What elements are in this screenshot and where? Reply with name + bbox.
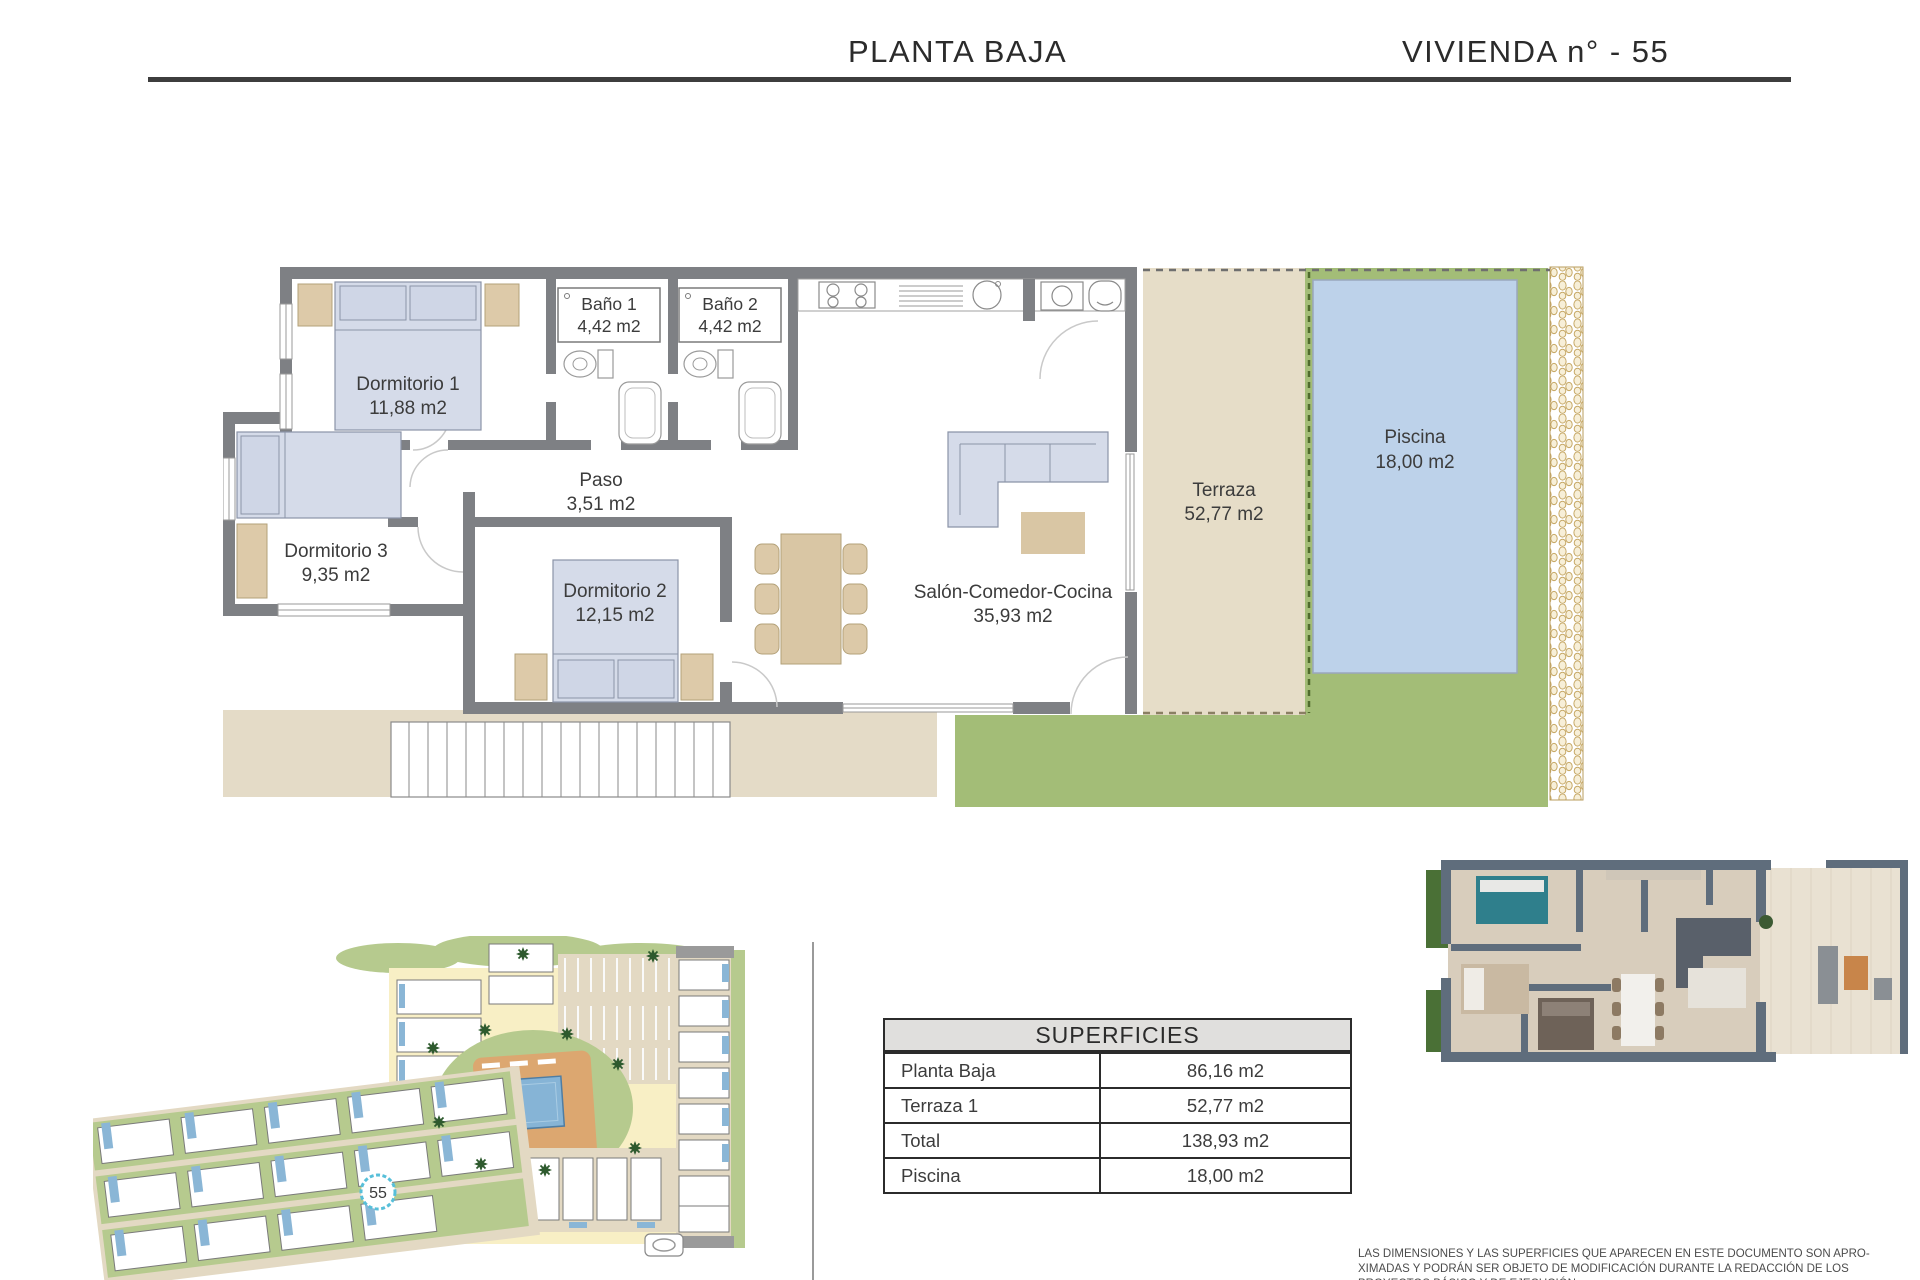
table-row-value: 52,77 m2 [1101,1089,1350,1122]
site-plan: 55 [93,936,812,1280]
site-left-wing [93,1066,540,1280]
table-row: Total 138,93 m2 [885,1122,1350,1157]
room-label-dormitorio3-name: Dormitorio 3 [284,541,387,562]
site-entrance-car-icon [645,1234,683,1256]
superficies-table: SUPERFICIES Planta Baja 86,16 m2 Terraza… [883,1018,1352,1194]
floor-plan: Dormitorio 1 11,88 m2 Baño 1 4,42 m2 Bañ… [223,262,1600,810]
room-label-dormitorio2-area: 12,15 m2 [575,605,654,626]
table-row-label: Total [885,1124,1101,1157]
table-row-label: Piscina [885,1159,1101,1192]
living-furniture [755,432,1108,664]
disclaimer: LAS DIMENSIONES Y LAS SUPERFICIES QUE AP… [1358,1247,1908,1280]
table-row: Piscina 18,00 m2 [885,1157,1350,1192]
room-label-paso-area: 3,51 m2 [567,494,636,515]
bath2-door-gap [711,440,741,450]
room-label-terraza-area: 52,77 m2 [1184,504,1263,525]
room-label-bano1-area: 4,42 m2 [577,316,640,336]
table-row-value: 18,00 m2 [1101,1159,1350,1192]
kitchen [798,279,1125,321]
unit-55-label: 55 [369,1185,387,1202]
table-row-label: Terraza 1 [885,1089,1101,1122]
room-label-paso-name: Paso [579,470,622,491]
render-3d [1426,856,1916,1066]
table-row: Planta Baja 86,16 m2 [885,1052,1350,1087]
table-row: Terraza 1 52,77 m2 [885,1087,1350,1122]
room-label-piscina-name: Piscina [1384,427,1446,448]
stairs [391,722,730,797]
room-label-bano2-area: 4,42 m2 [698,316,761,336]
page-title-unit: VIVIENDA n° - 55 [1402,34,1669,70]
table-title: SUPERFICIES [885,1020,1350,1052]
disclaimer-line1: LAS DIMENSIONES Y LAS SUPERFICIES QUE AP… [1358,1247,1908,1262]
table-row-value: 86,16 m2 [1101,1054,1350,1087]
section-divider [812,942,814,1280]
plan-sheet: PLANTA BAJA VIVIENDA n° - 55 [0,0,1920,1280]
room-label-bano2-name: Baño 2 [702,294,757,314]
bath1-door-gap [591,440,621,450]
room-label-terraza-name: Terraza [1192,480,1256,501]
site-right-column [676,946,745,1248]
room-label-bano1-name: Baño 1 [581,294,636,314]
room-label-dormitorio2-name: Dormitorio 2 [563,581,666,602]
page-title-floor: PLANTA BAJA [848,34,1067,70]
unit-55-badge: 55 [361,1175,395,1209]
room-label-piscina-area: 18,00 m2 [1375,452,1454,473]
room-label-dormitorio1-area: 11,88 m2 [369,398,447,419]
disclaimer-line2: XIMADAS Y PODRÁN SER OBJETO DE MODIFICAC… [1358,1262,1908,1277]
room-label-salon-name: Salón-Comedor-Cocina [914,582,1113,603]
room-label-salon-area: 35,93 m2 [973,606,1052,627]
pebble-border [1550,267,1583,800]
room-label-dormitorio3-area: 9,35 m2 [302,565,371,586]
pool-area [1313,280,1517,673]
table-row-value: 138,93 m2 [1101,1124,1350,1157]
room-label-dormitorio1-name: Dormitorio 1 [356,374,459,395]
dining-table [781,534,841,664]
header-rule [148,77,1791,82]
rug [1021,512,1085,554]
table-row-label: Planta Baja [885,1054,1101,1087]
